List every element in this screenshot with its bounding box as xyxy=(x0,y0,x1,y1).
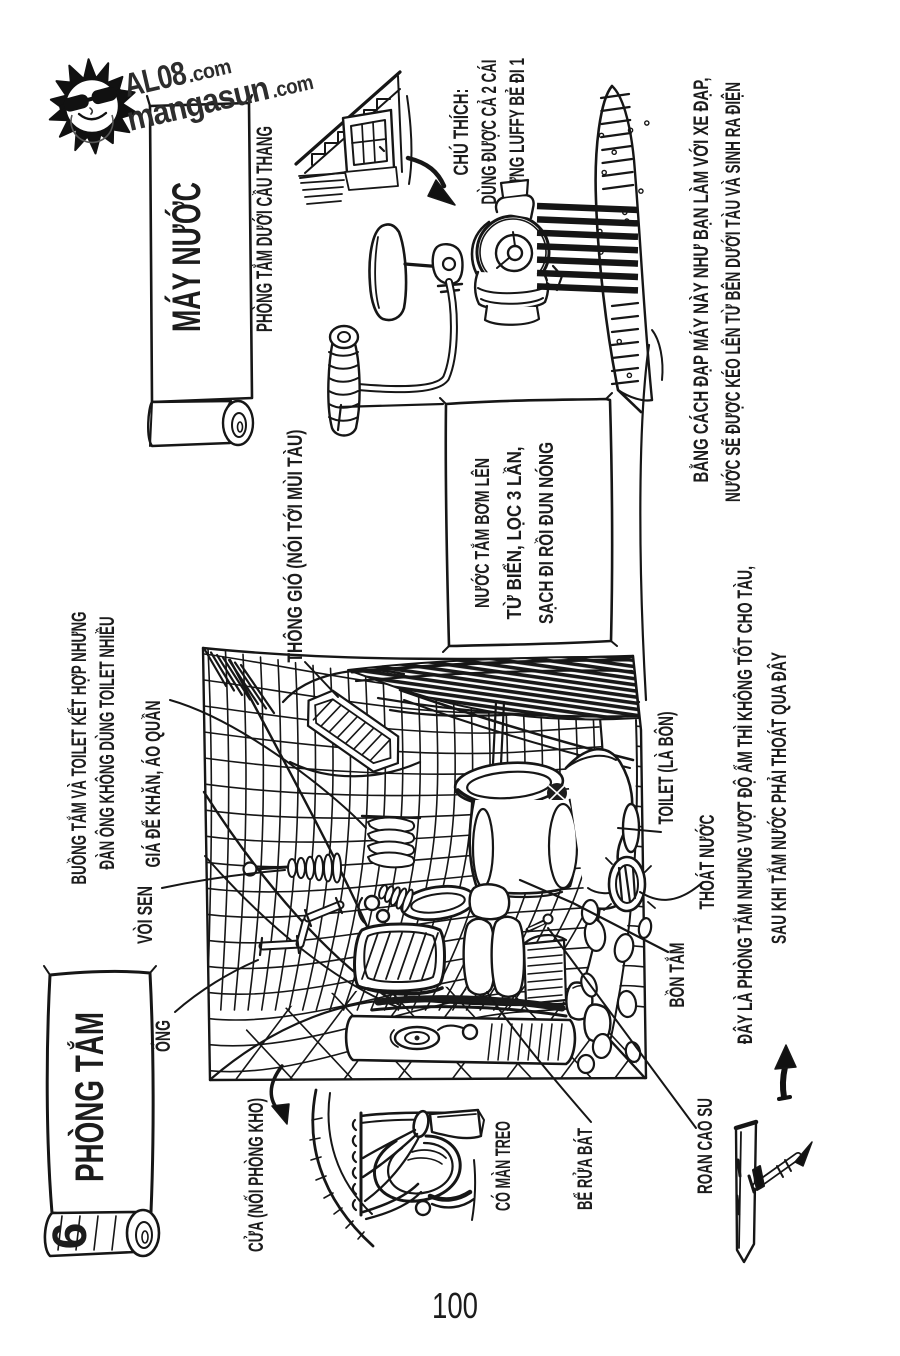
svg-text:CHÚ THÍCH:: CHÚ THÍCH: xyxy=(449,89,473,176)
svg-text:GIÁ ĐỂ KHĂN, ÁO QUẦN: GIÁ ĐỂ KHĂN, ÁO QUẦN xyxy=(142,701,165,868)
svg-text:BỂ RỬA BÁT: BỂ RỬA BÁT xyxy=(573,1128,597,1210)
svg-text:BẰNG CÁCH ĐẠP MÁY NÀY NHƯ BẠN: BẰNG CÁCH ĐẠP MÁY NÀY NHƯ BẠN LÀM VỚI XE… xyxy=(689,78,713,483)
svg-text:PHÒNG TẮM: PHÒNG TẮM xyxy=(66,1012,112,1182)
svg-text:ROAN CAO SU: ROAN CAO SU xyxy=(694,1098,717,1194)
svg-text:ĐÂY LÀ PHÒNG TẮM NHƯNG VƯỢT ĐỘ: ĐÂY LÀ PHÒNG TẮM NHƯNG VƯỢT ĐỘ ẨM THÌ KH… xyxy=(733,566,757,1044)
svg-text:TOILET (LÀ BÔN): TOILET (LÀ BÔN) xyxy=(654,712,678,825)
svg-text:ĐÀN ÔNG KHÔNG DÙNG TOILET NHIỀ: ĐÀN ÔNG KHÔNG DÙNG TOILET NHIỀU xyxy=(95,617,119,870)
svg-text:100: 100 xyxy=(432,1285,478,1326)
svg-text:THOÁT NƯỚC: THOÁT NƯỚC xyxy=(695,815,719,910)
svg-text:NƯỚC SẼ ĐƯỢC KÉO LÊN TỪ BÊN DƯ: NƯỚC SẼ ĐƯỢC KÉO LÊN TỪ BÊN DƯỚI TÀU VÀ … xyxy=(721,82,745,502)
svg-text:TỪ BIỂN, LỌC 3 LẦN,: TỪ BIỂN, LỌC 3 LẦN, xyxy=(502,447,526,620)
svg-text:NƯỚC TẮM BƠM LÊN: NƯỚC TẮM BƠM LÊN xyxy=(470,458,494,608)
svg-text:PHÒNG TẮM DƯỚI CẦU THANG: PHÒNG TẮM DƯỚI CẦU THANG xyxy=(252,126,277,332)
svg-text:CỬA (NỐI PHÒNG KHO): CỬA (NỐI PHÒNG KHO) xyxy=(244,1098,268,1252)
svg-text:SAU KHI TẮM NƯỚC PHẢI THOÁT QU: SAU KHI TẮM NƯỚC PHẢI THOÁT QUA ĐÂY xyxy=(767,652,791,944)
svg-text:VÒI SEN: VÒI SEN xyxy=(133,886,157,944)
svg-text:THÔNG GIÓ (NÓI TỚI MÙI TÀU): THÔNG GIÓ (NÓI TỚI MÙI TÀU) xyxy=(283,430,307,663)
svg-text:MÁY NƯỚC: MÁY NƯỚC xyxy=(163,182,209,332)
svg-text:BUỒNG TẮM VÀ TOILET KẾT HỢP NH: BUỒNG TẮM VÀ TOILET KẾT HỢP NHƯNG xyxy=(67,612,91,885)
svg-text:SẠCH ĐI RỒI ĐUN NÓNG: SẠCH ĐI RỒI ĐUN NÓNG xyxy=(534,442,558,624)
svg-text:CÓ MÀN TREO: CÓ MÀN TREO xyxy=(491,1121,515,1211)
svg-text:ỐNG: ỐNG xyxy=(151,1020,175,1052)
svg-text:6: 6 xyxy=(44,1223,97,1250)
svg-text:DÙNG ĐƯỢC CẢ 2 CÁI: DÙNG ĐƯỢC CẢ 2 CÁI xyxy=(477,60,501,205)
